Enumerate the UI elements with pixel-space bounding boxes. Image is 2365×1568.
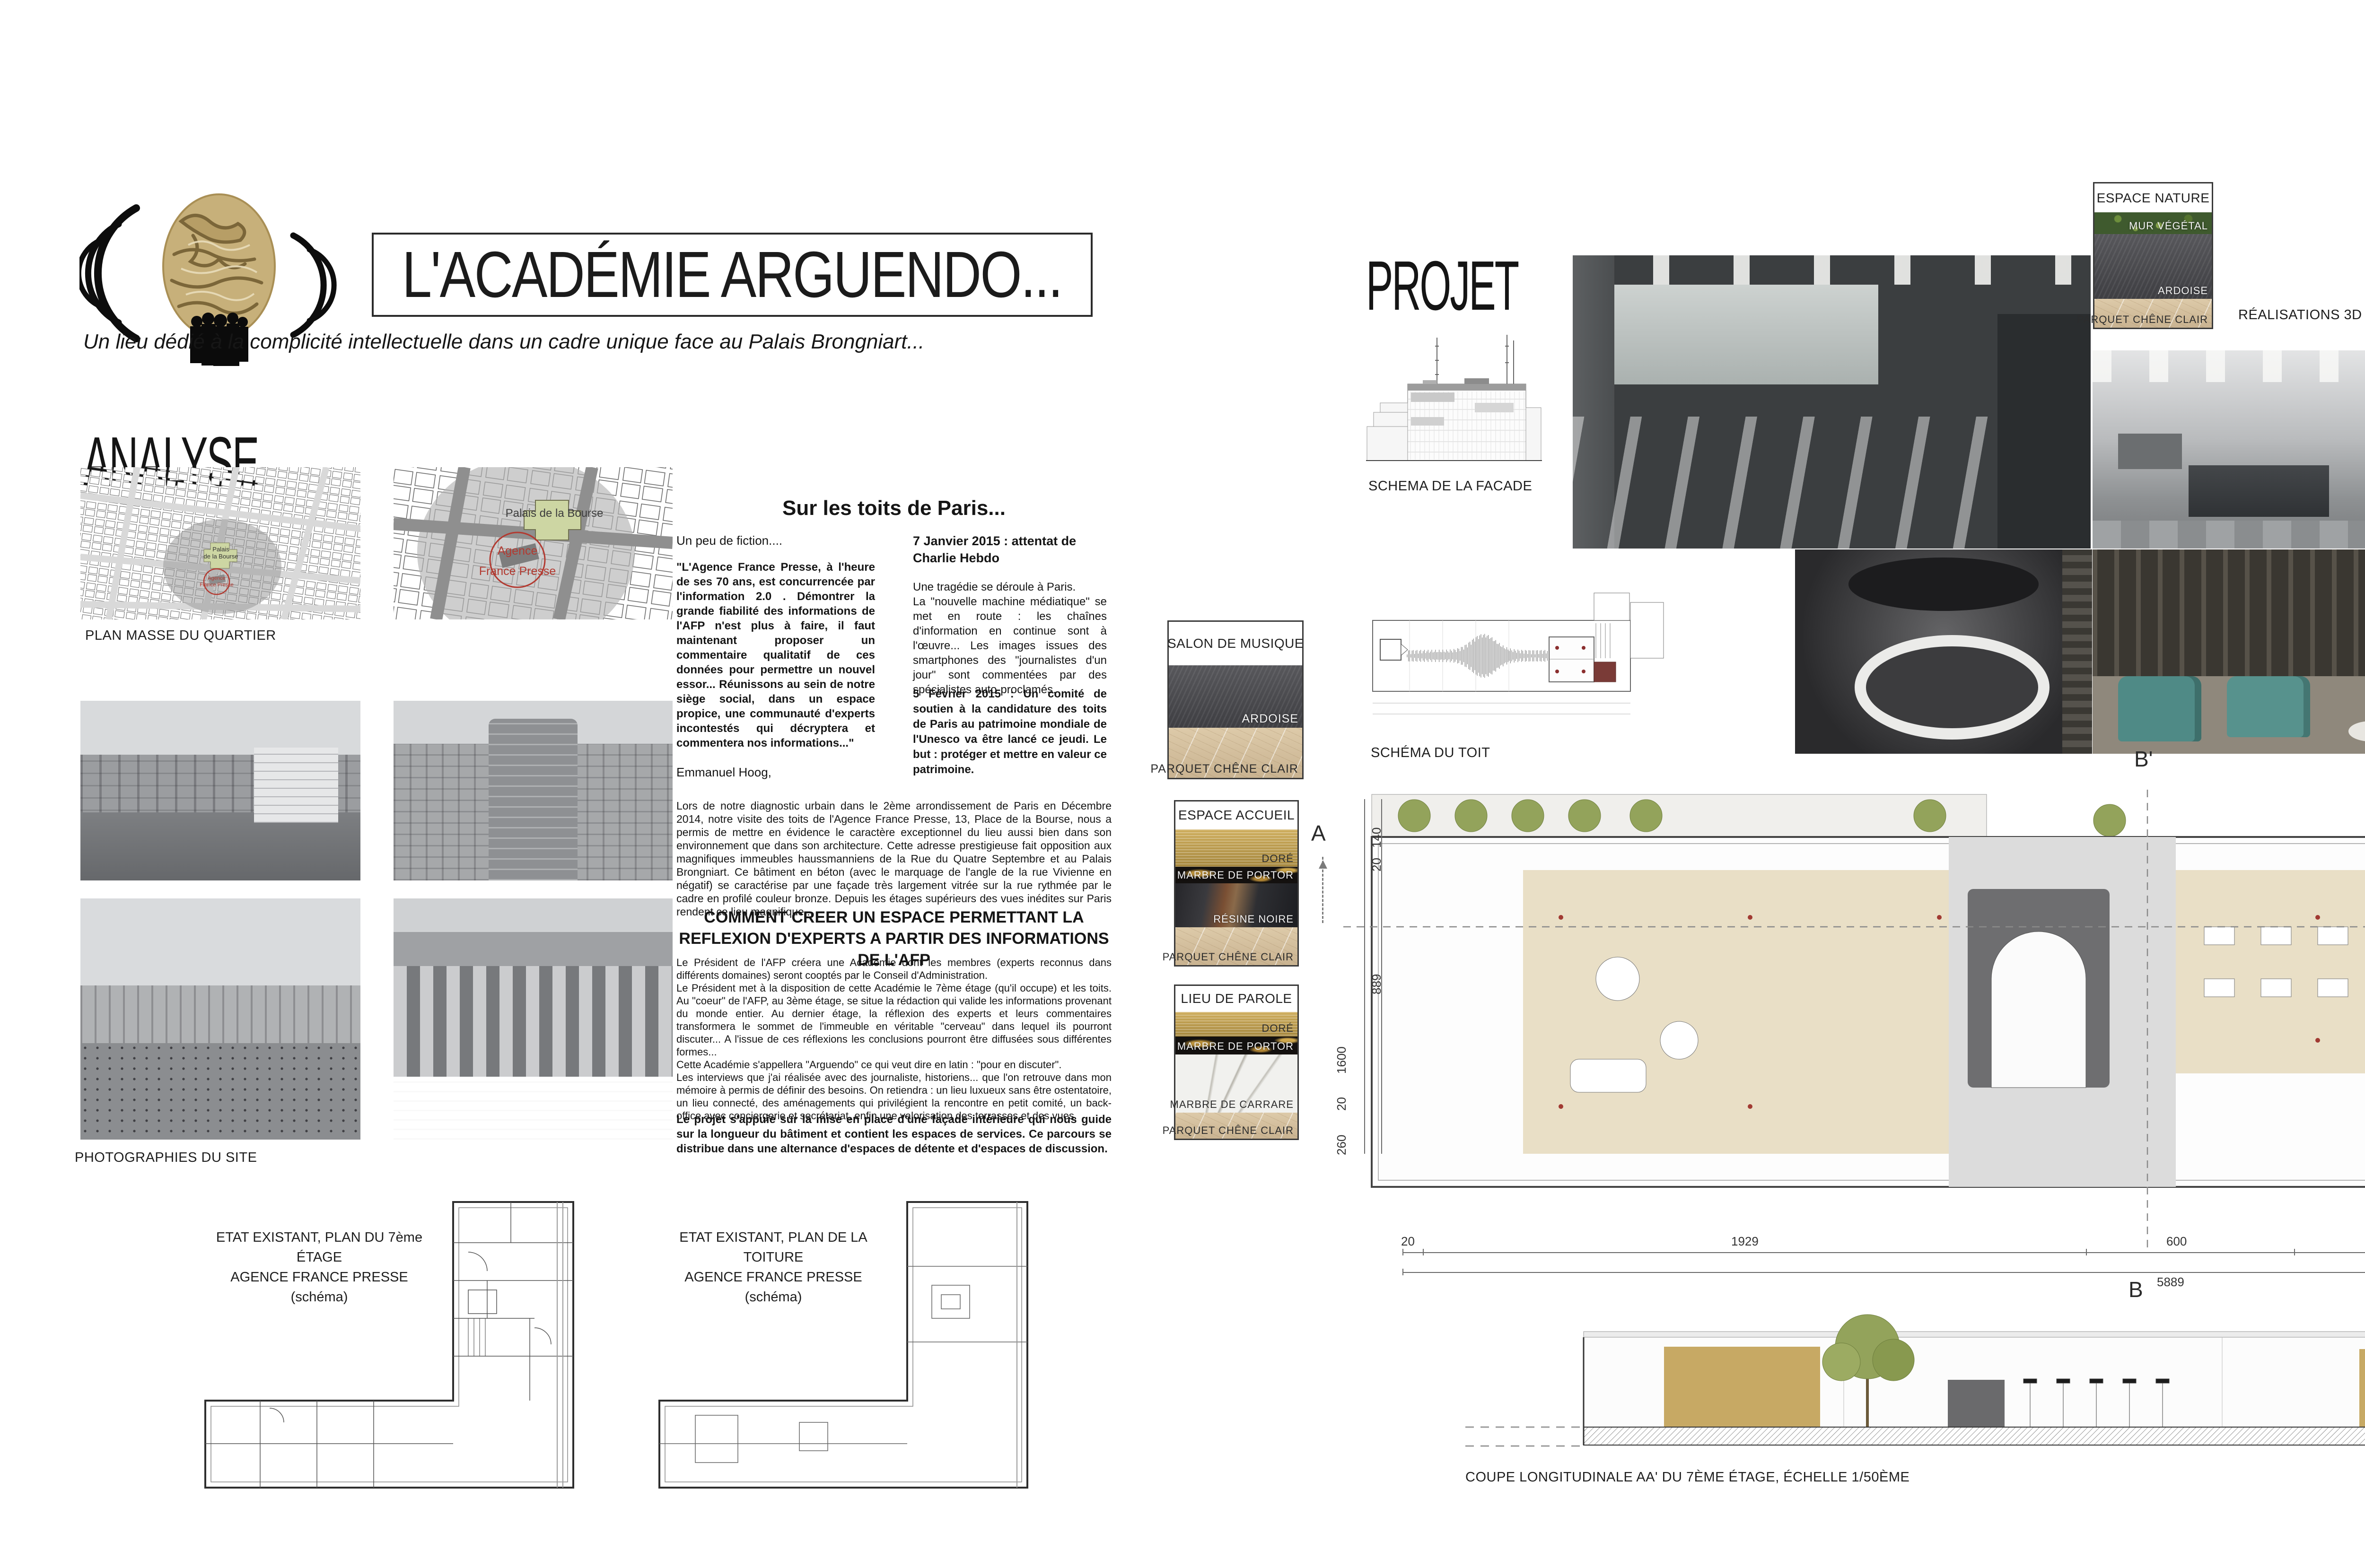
swatch-band-resine: RÉSINE NOIRE [1175, 883, 1297, 927]
map1-palais-label-1: Palais [212, 546, 229, 553]
map2-afp-label-1: Agence [498, 544, 538, 558]
swatch-band-vegetal: MUR VÉGÉTAL [2094, 212, 2212, 234]
roof-schema-drawing [1367, 592, 1673, 736]
existing-plan-1-drawing [203, 1200, 575, 1490]
dimension-label: 889 [1369, 974, 1384, 994]
longitudinal-section-drawing [1465, 1309, 2365, 1466]
material-swatch-espace-accueil: ESPACE ACCUEILDORÉMARBRE DE PORTORRÉSINE… [1174, 800, 1299, 967]
swatch-band-label: PARQUET CHÊNE CLAIR [2077, 314, 2208, 326]
site-plan-map-district: Palais de la Bourse Agence France Presse [80, 467, 360, 619]
antenna-icon [1435, 335, 1514, 385]
dimension-label: 1600 [1334, 1046, 1349, 1074]
article-quote: "L'Agence France Presse, à l'heure de se… [676, 560, 875, 750]
article-intro: Un peu de fiction.... [676, 533, 875, 548]
swatch-band-parquet: PARQUET CHÊNE CLAIR [1175, 1113, 1297, 1139]
dimension-line [1402, 1252, 2365, 1253]
map1-afp-label-2: France Presse [200, 582, 234, 588]
swatch-band-label: DORÉ [1261, 1022, 1294, 1035]
site-plan-map-closeup: Palais de la Bourse Agence France Presse [394, 467, 673, 619]
gold-panel [1664, 1347, 1820, 1427]
swatch-title: SALON DE MUSIQUE [1169, 622, 1302, 665]
section-marker-B: B [2128, 1277, 2143, 1302]
dimension-line [1364, 799, 1365, 1154]
map1-palais-label-2: de la Bourse [204, 553, 238, 560]
swatch-band-label: ARDOISE [2158, 285, 2208, 297]
teal-armchair-icon [2118, 676, 2201, 741]
article-author: Emmanuel Hoog, [676, 765, 875, 780]
existing-plan-2-drawing [657, 1200, 1029, 1490]
swatch-band-parquet: PARQUET CHÊNE CLAIR [1175, 927, 1297, 965]
gold-panel [2359, 1349, 2365, 1427]
map1-afp-label-1: Agence [208, 575, 225, 581]
swatch-band-label: MARBRE DE CARRARE [1170, 1098, 1294, 1111]
dimension-line [1402, 1272, 2365, 1273]
map2-palais-label-1: Palais de la Bourse [506, 507, 604, 520]
projet-heading: PROJET [1366, 246, 1518, 326]
dimension-label: 20 [1401, 1234, 1415, 1249]
photo-site-1 [80, 701, 360, 880]
material-swatch-salon-de-musique: SALON DE MUSIQUEARDOISEPARQUET CHÊNE CLA… [1167, 620, 1304, 779]
paragraph-project: Le projet s'appuie sur la mise en place … [676, 1112, 1112, 1156]
render-interior-terrace [1573, 255, 2091, 549]
caption-realisations-3d: RÉALISATIONS 3D [2238, 307, 2362, 323]
news1-title: 7 Janvier 2015 : attentat de Charlie Heb… [913, 532, 1107, 566]
swatch-band-label: MARBRE DE PORTOR [1177, 1040, 1294, 1053]
swatch-band-carrare: MARBRE DE CARRARE [1175, 1054, 1297, 1113]
dimension-label: 5889 [2157, 1275, 2184, 1289]
news1-body: Une tragédie se déroule à Paris. La "nou… [913, 580, 1107, 697]
teal-armchair-icon [2227, 676, 2310, 738]
render-kitchen [2093, 350, 2365, 549]
swatch-band-label: ARDOISE [1242, 712, 1298, 726]
swatch-band-ardoise: ARDOISE [2094, 234, 2212, 299]
photo-site-4 [394, 898, 673, 1140]
photo-site-2 [394, 701, 673, 880]
swatch-band-label: PARQUET CHÊNE CLAIR [1163, 1124, 1294, 1137]
material-swatch-espace-nature: ESPACE NATUREMUR VÉGÉTALARDOISEPARQUET C… [2093, 182, 2213, 329]
counter [1948, 1380, 2005, 1427]
swatch-band-portor: MARBRE DE PORTOR [1175, 867, 1297, 883]
dimension-label: 1929 [1731, 1234, 1759, 1249]
swatch-title: ESPACE ACCUEIL [1175, 801, 1297, 829]
section-marker-A: A [1311, 820, 1326, 846]
paragraph-program: Le Président de l'AFP créera une Académi… [676, 956, 1112, 1122]
news2: 5 Février 2015 : Un comité de soutien à … [913, 687, 1107, 777]
section-marker-Bp: B' [2134, 746, 2153, 772]
swatch-band-label: MARBRE DE PORTOR [1177, 869, 1294, 881]
dimension-label: 260 [1334, 1135, 1349, 1155]
map2-afp-label-2: France Presse [479, 565, 556, 578]
swatch-band-parquet: PARQUET CHÊNE CLAIR [2094, 299, 2212, 328]
dimension-label: 20 [1334, 1097, 1349, 1111]
render-bibliotheque [2093, 549, 2365, 754]
swatch-title: ESPACE NATURE [2094, 183, 2212, 212]
swatch-band-label: PARQUET CHÊNE CLAIR [1150, 762, 1298, 776]
caption-plan-masse: PLAN MASSE DU QUARTIER [85, 628, 276, 644]
subtitle: Un lieu dédié à la complicité intellectu… [83, 330, 924, 354]
facade-schema-drawing [1366, 327, 1542, 475]
dimension-label: 140 [1369, 828, 1384, 848]
title-box: L'ACADÉMIE ARGUENDO... [372, 233, 1093, 317]
caption-schema-toit: SCHÉMA DU TOIT [1371, 745, 1490, 761]
swatch-band-portor: MARBRE DE PORTOR [1175, 1037, 1297, 1055]
paragraph-site: Lors de notre diagnostic urbain dans le … [676, 799, 1112, 918]
swatch-band-ardoise: ARDOISE [1169, 665, 1302, 728]
page-title: L'ACADÉMIE ARGUENDO... [403, 237, 1062, 313]
caption-coupe-longitudinale: COUPE LONGITUDINALE AA' DU 7ÈME ÉTAGE, É… [1465, 1470, 1910, 1485]
swatch-band-dore: DORÉ [1175, 829, 1297, 867]
caption-photos: PHOTOGRAPHIES DU SITE [75, 1150, 257, 1166]
swatch-title: LIEU DE PAROLE [1175, 986, 1297, 1012]
swatch-band-label: DORÉ [1261, 853, 1294, 865]
render-oval-salon [1795, 549, 2092, 754]
swatch-band-label: PARQUET CHÊNE CLAIR [1163, 951, 1294, 963]
dimension-label: 20 [1369, 858, 1384, 871]
swatch-band-parquet: PARQUET CHÊNE CLAIR [1169, 728, 1302, 778]
section-arrow [1322, 857, 1323, 923]
swatch-band-label: RÉSINE NOIRE [1213, 913, 1294, 925]
swatch-band-dore: DORÉ [1175, 1012, 1297, 1037]
photo-site-3 [80, 898, 360, 1140]
caption-schema-facade: SCHEMA DE LA FACADE [1368, 479, 1532, 494]
main-floor-plan-drawing [1305, 775, 2365, 1296]
swatch-band-label: MUR VÉGÉTAL [2129, 220, 2208, 232]
dimension-label: 600 [2166, 1234, 2187, 1249]
poster-page: { "header": { "title": "L'ACADÉMIE ARGUE… [0, 0, 2365, 1568]
article-title: Sur les toits de Paris... [676, 497, 1112, 520]
material-swatch-lieu-de-parole: LIEU DE PAROLEDORÉMARBRE DE PORTORMARBRE… [1174, 984, 1299, 1140]
